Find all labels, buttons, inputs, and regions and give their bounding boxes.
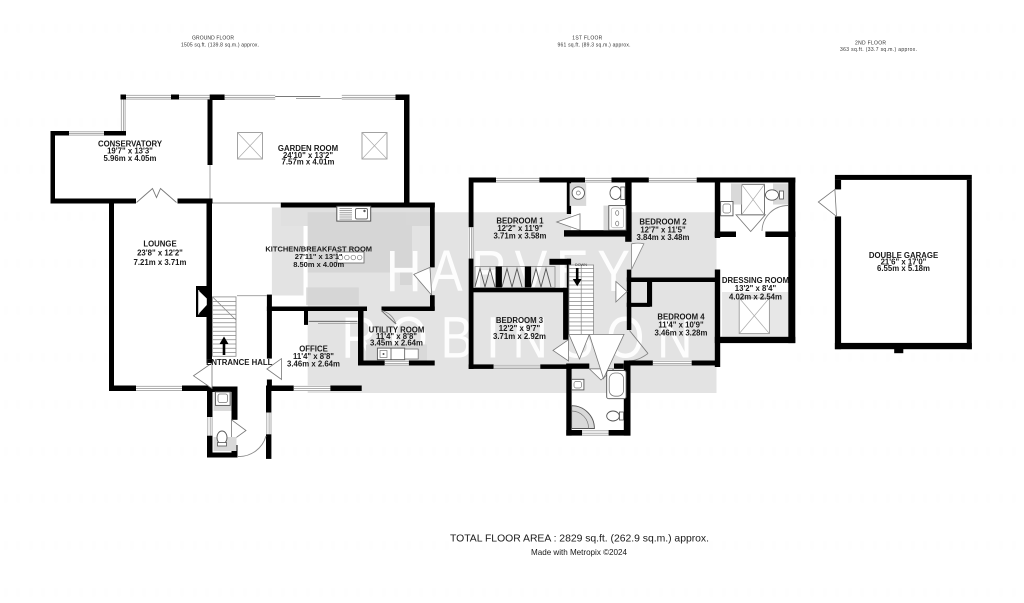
svg-text:3.71m x 2.92m: 3.71m x 2.92m <box>493 332 546 341</box>
svg-text:TOTAL FLOOR AREA : 2829 sq.ft.: TOTAL FLOOR AREA : 2829 sq.ft. (262.9 sq… <box>450 534 709 545</box>
svg-text:3.45m x 2.64m: 3.45m x 2.64m <box>370 339 423 348</box>
svg-text:7.21m x 3.71m: 7.21m x 3.71m <box>134 258 187 267</box>
svg-text:3.84m x 3.48m: 3.84m x 3.48m <box>637 233 690 242</box>
svg-text:DOWN: DOWN <box>575 263 587 267</box>
svg-text:1ST FLOOR: 1ST FLOOR <box>572 36 602 42</box>
svg-text:363 sq.ft. (33.7 sq.m.) approx: 363 sq.ft. (33.7 sq.m.) approx. <box>840 47 917 53</box>
svg-text:3.46m x 3.28m: 3.46m x 3.28m <box>655 329 708 338</box>
svg-text:7.57m x 4.01m: 7.57m x 4.01m <box>282 158 335 167</box>
svg-text:Made with Metropix ©2024: Made with Metropix ©2024 <box>531 548 627 557</box>
svg-text:8.50m x 4.00m: 8.50m x 4.00m <box>293 260 344 269</box>
svg-text:3.46m x 2.64m: 3.46m x 2.64m <box>287 360 340 369</box>
svg-text:2ND FLOOR: 2ND FLOOR <box>855 41 886 47</box>
svg-text:6.55m x 5.18m: 6.55m x 5.18m <box>877 264 930 273</box>
svg-text:23'8" x 12'2": 23'8" x 12'2" <box>137 249 183 258</box>
svg-text:5.96m x 4.05m: 5.96m x 4.05m <box>104 154 157 163</box>
svg-text:GROUND FLOOR: GROUND FLOOR <box>192 36 234 42</box>
svg-text:ENTRANCE HALL: ENTRANCE HALL <box>206 358 273 367</box>
svg-text:961 sq.ft. (89.3 sq.m.) approx: 961 sq.ft. (89.3 sq.m.) approx. <box>558 42 631 48</box>
svg-text:4.02m x 2.54m: 4.02m x 2.54m <box>729 293 782 302</box>
svg-text:1505 sq.ft. (139.8 sq.m.) appr: 1505 sq.ft. (139.8 sq.m.) approx. <box>181 42 259 48</box>
svg-text:LOUNGE: LOUNGE <box>143 240 176 249</box>
svg-text:3.71m x 3.58m: 3.71m x 3.58m <box>494 231 547 240</box>
